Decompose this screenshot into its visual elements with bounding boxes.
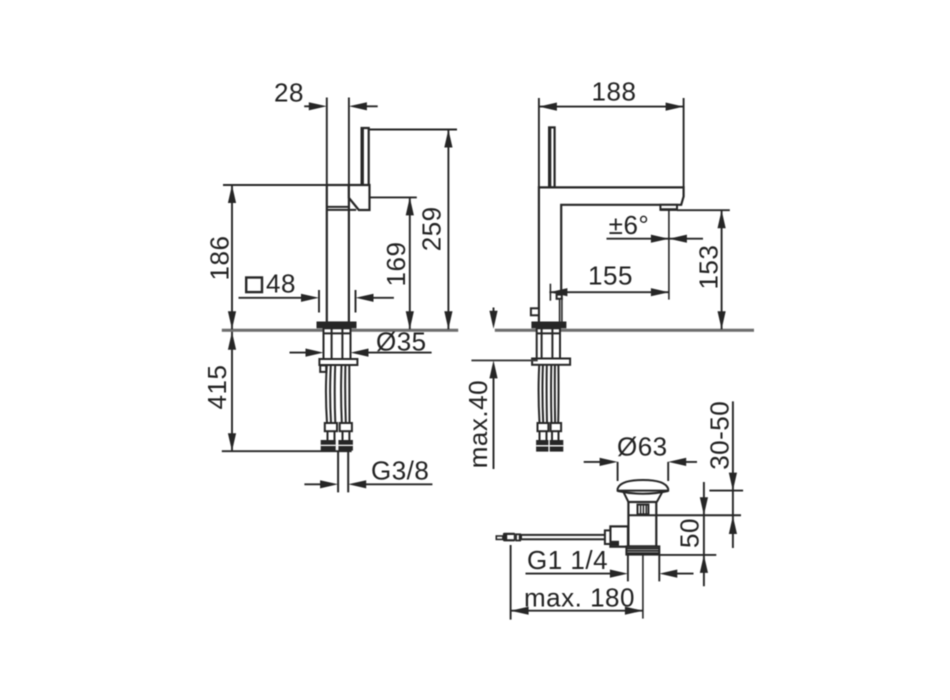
svg-text:50: 50 — [675, 518, 705, 548]
svg-text:30-50: 30-50 — [705, 401, 735, 470]
svg-text:G1 1/4: G1 1/4 — [527, 545, 608, 575]
svg-text:max.40: max.40 — [463, 380, 493, 468]
svg-text:169: 169 — [381, 242, 411, 287]
svg-text:Ø63: Ø63 — [617, 431, 668, 461]
svg-text:186: 186 — [205, 236, 235, 281]
svg-text:259: 259 — [417, 206, 447, 251]
svg-text:155: 155 — [588, 260, 633, 290]
svg-text:188: 188 — [592, 77, 637, 107]
svg-text:max. 180: max. 180 — [524, 583, 635, 613]
svg-text:415: 415 — [202, 365, 232, 410]
svg-text:48: 48 — [266, 269, 296, 299]
svg-text:28: 28 — [274, 78, 304, 108]
svg-text:153: 153 — [694, 245, 724, 290]
svg-text:±6°: ±6° — [609, 210, 650, 240]
svg-text:Ø35: Ø35 — [376, 327, 427, 357]
svg-text:G3/8: G3/8 — [371, 456, 429, 486]
